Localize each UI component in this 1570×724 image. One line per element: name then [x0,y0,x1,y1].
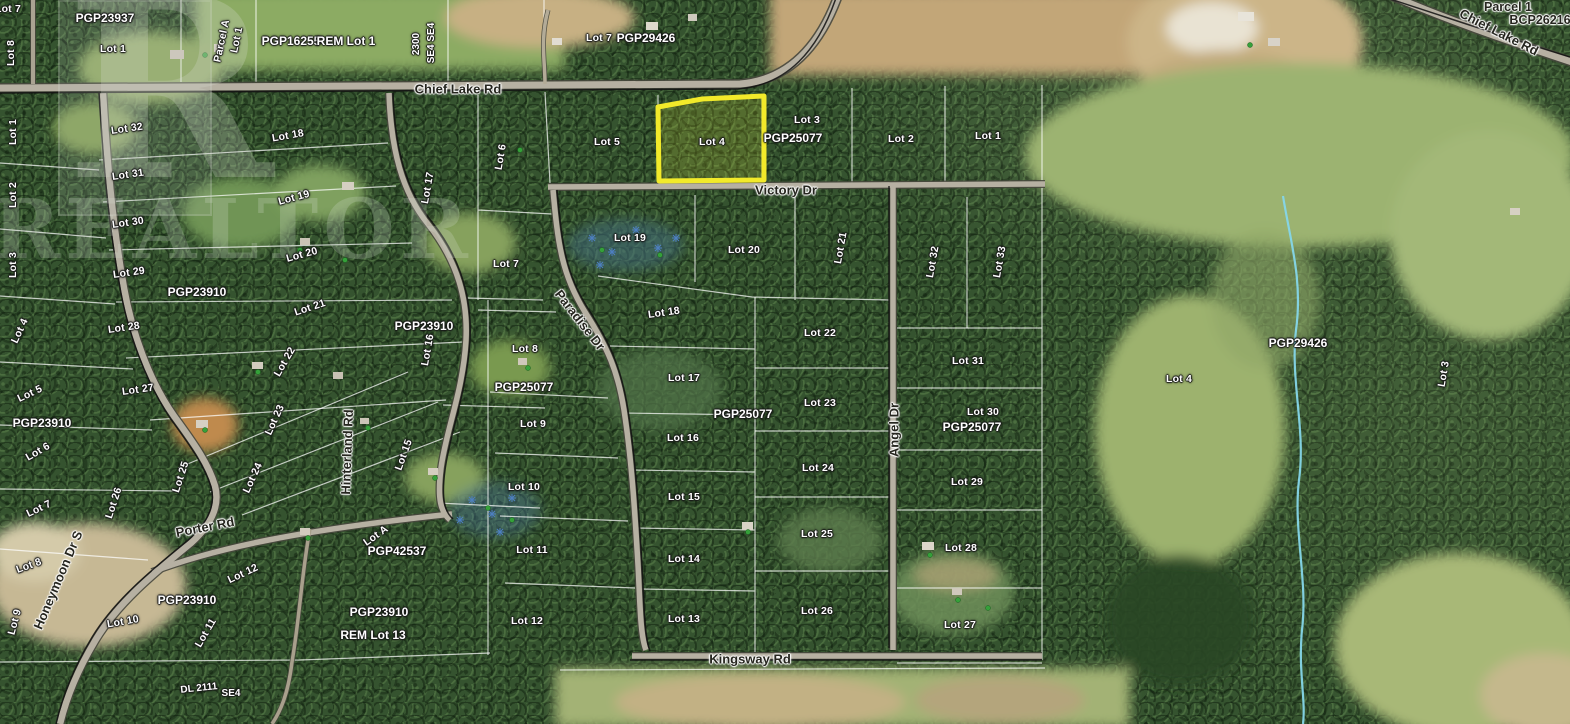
terrain-patches [0,0,1570,724]
map-canvas[interactable]: R REALTOR Lot 7Lot 8PGP23937Lot 1Parcel … [0,0,1570,724]
map-overlay [0,0,1570,724]
highlighted-parcel[interactable] [658,96,764,181]
